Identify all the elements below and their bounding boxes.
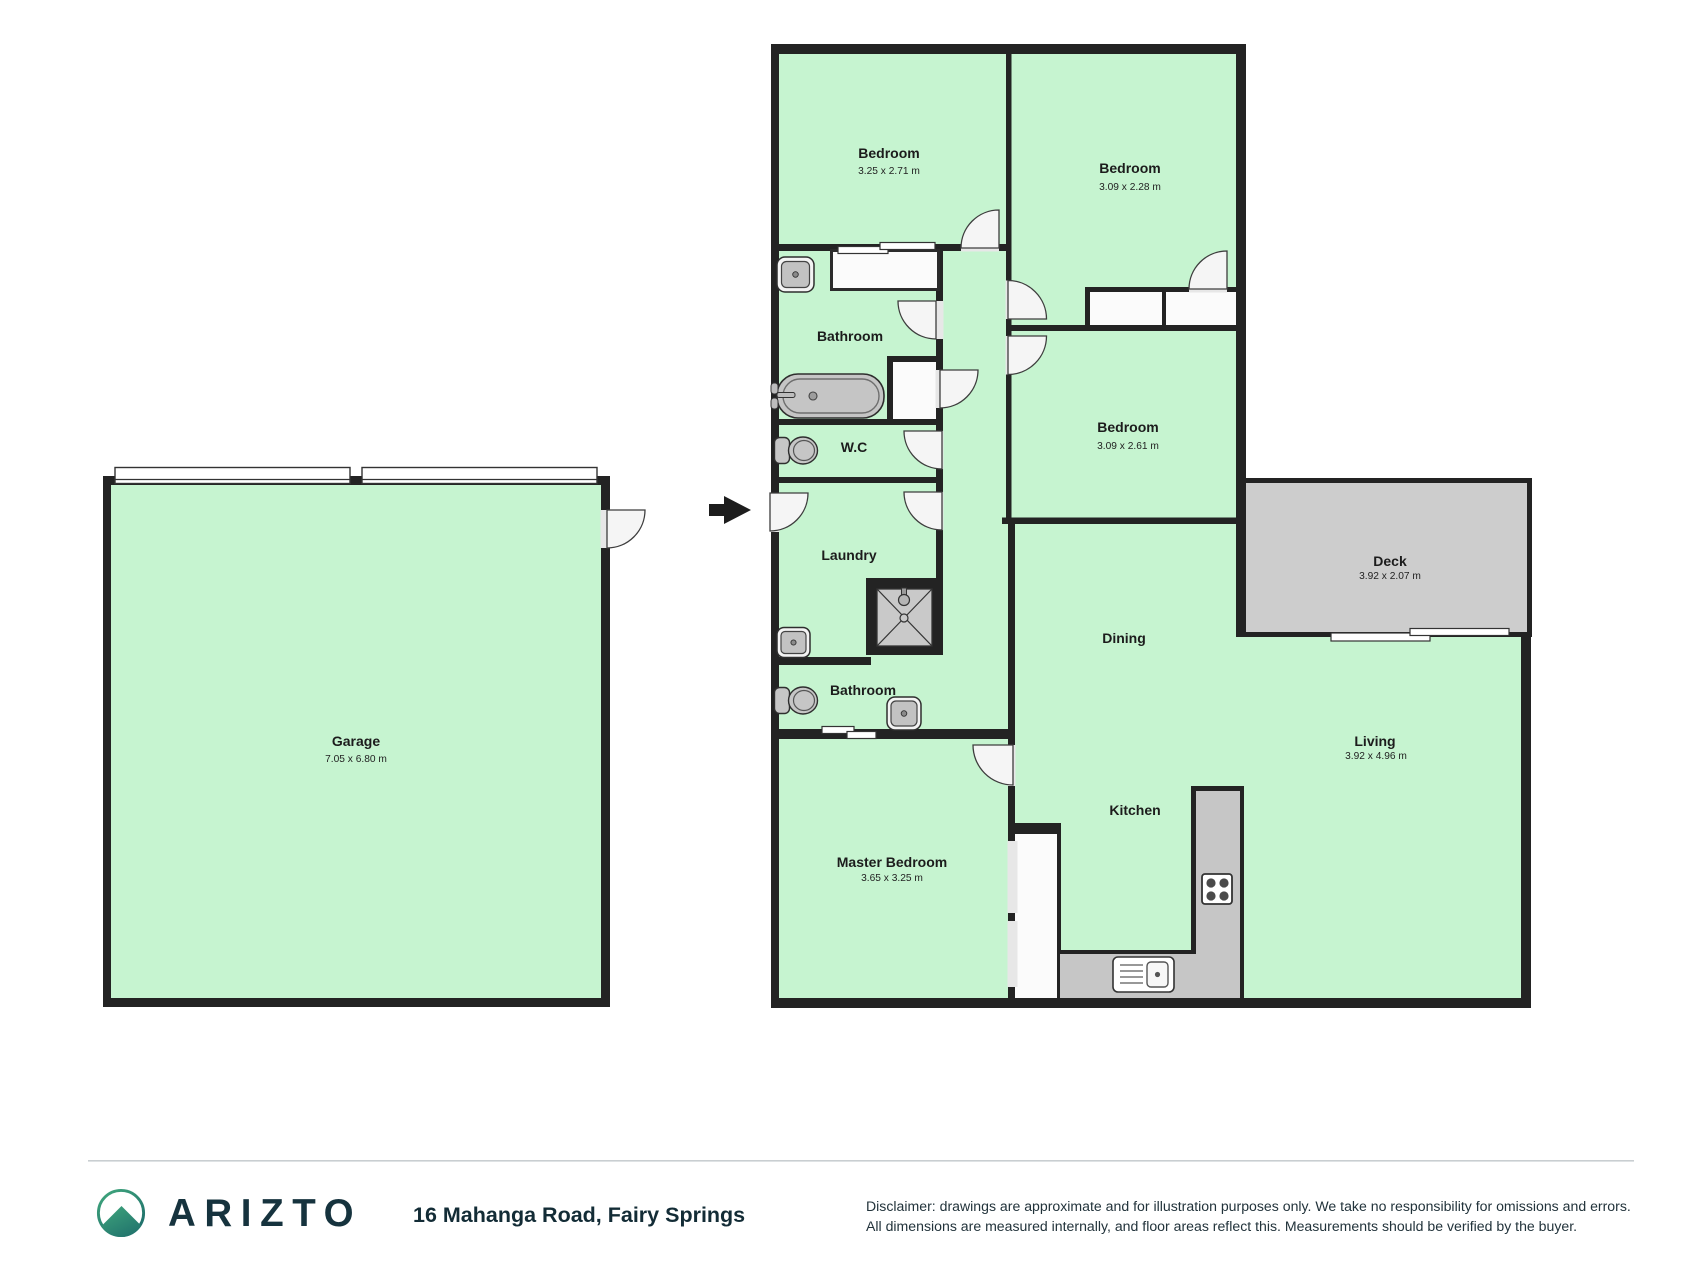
svg-text:7.05 x 6.80 m: 7.05 x 6.80 m bbox=[325, 754, 387, 765]
svg-text:3.09 x 2.28 m: 3.09 x 2.28 m bbox=[1099, 182, 1161, 193]
svg-text:Garage: Garage bbox=[332, 733, 380, 749]
svg-text:Dining: Dining bbox=[1102, 630, 1146, 646]
svg-text:Living: Living bbox=[1354, 733, 1395, 749]
svg-text:Laundry: Laundry bbox=[821, 547, 876, 563]
svg-text:Kitchen: Kitchen bbox=[1109, 802, 1160, 818]
svg-text:3.92 x 4.96 m: 3.92 x 4.96 m bbox=[1345, 751, 1407, 762]
svg-text:Bedroom: Bedroom bbox=[1099, 160, 1160, 176]
svg-text:Bedroom: Bedroom bbox=[1097, 419, 1158, 435]
svg-text:W.C: W.C bbox=[841, 439, 867, 455]
svg-text:3.25 x 2.71 m: 3.25 x 2.71 m bbox=[858, 166, 920, 177]
svg-text:3.09 x 2.61 m: 3.09 x 2.61 m bbox=[1097, 441, 1159, 452]
svg-text:All dimensions are measured in: All dimensions are measured internally, … bbox=[866, 1218, 1577, 1234]
svg-text:Bedroom: Bedroom bbox=[858, 145, 919, 161]
svg-text:Master Bedroom: Master Bedroom bbox=[837, 854, 947, 870]
svg-text:ARIZTO: ARIZTO bbox=[168, 1192, 362, 1235]
svg-text:Bathroom: Bathroom bbox=[830, 682, 896, 698]
svg-text:3.65 x 3.25 m: 3.65 x 3.25 m bbox=[861, 873, 923, 884]
svg-text:16 Mahanga Road, Fairy Springs: 16 Mahanga Road, Fairy Springs bbox=[413, 1203, 745, 1227]
svg-text:Deck: Deck bbox=[1373, 553, 1407, 569]
svg-text:Bathroom: Bathroom bbox=[817, 328, 883, 344]
svg-text:Disclaimer: drawings are appro: Disclaimer: drawings are approximate and… bbox=[866, 1198, 1631, 1214]
svg-text:3.92 x 2.07 m: 3.92 x 2.07 m bbox=[1359, 571, 1421, 582]
